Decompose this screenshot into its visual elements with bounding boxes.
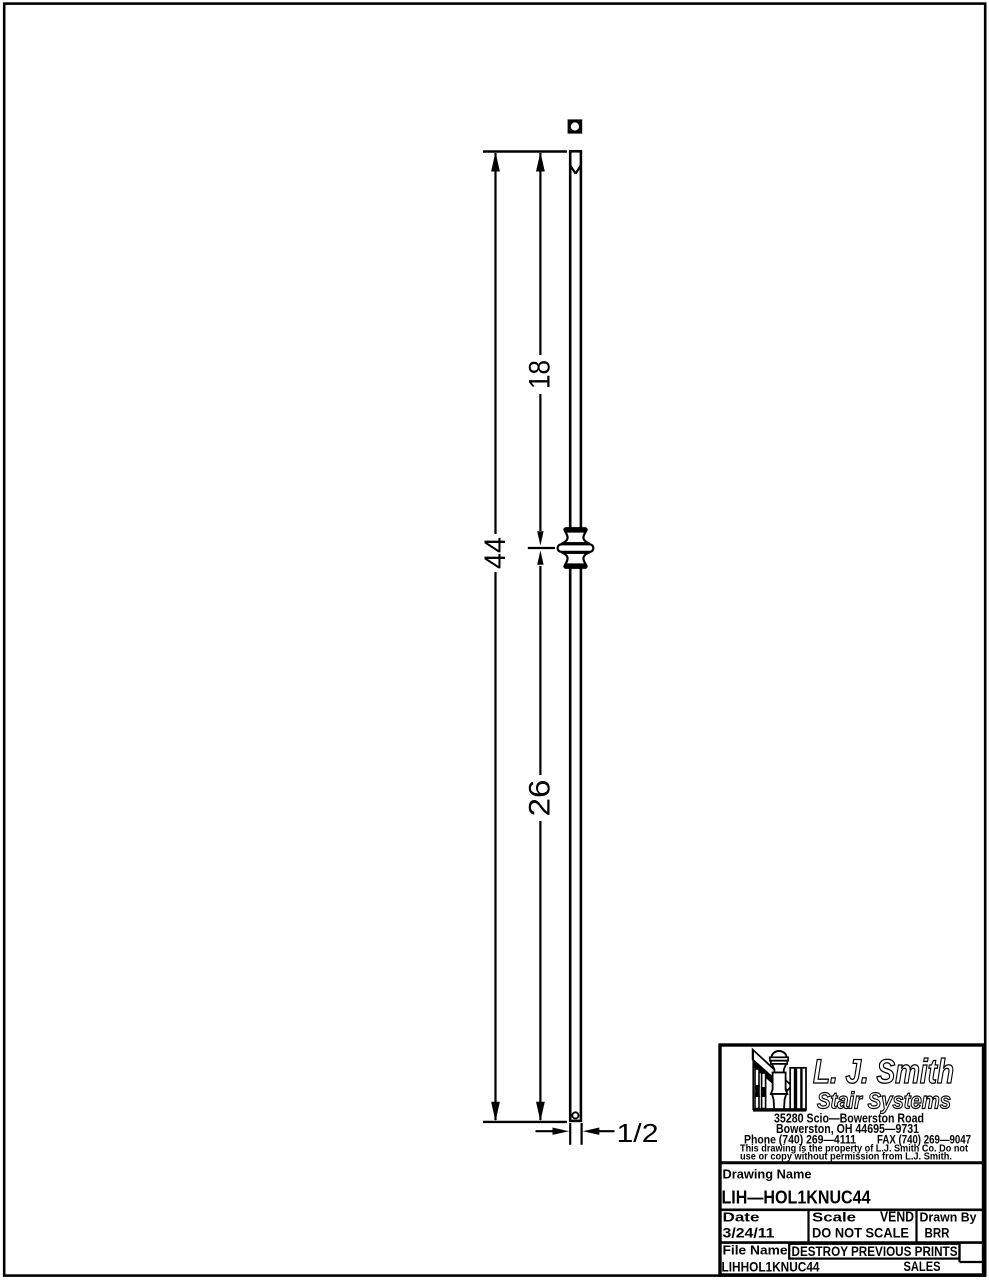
svg-text:LIH—HOL1KNUC44: LIH—HOL1KNUC44 xyxy=(722,1188,872,1208)
svg-text:DESTROY PREVIOUS PRINTS: DESTROY PREVIOUS PRINTS xyxy=(792,1244,958,1259)
svg-text:Drawing Name: Drawing Name xyxy=(723,1167,812,1182)
svg-text:DO NOT SCALE: DO NOT SCALE xyxy=(812,1226,909,1241)
svg-text:44: 44 xyxy=(479,537,512,569)
svg-text:File Name: File Name xyxy=(723,1243,788,1258)
svg-text:Date: Date xyxy=(723,1210,760,1225)
svg-text:26: 26 xyxy=(524,780,557,817)
svg-text:L. J. Smith: L. J. Smith xyxy=(813,1053,954,1091)
svg-text:VEND: VEND xyxy=(880,1210,914,1226)
svg-text:BRR: BRR xyxy=(925,1226,950,1241)
svg-text:LIHHOL1KNUC44: LIHHOL1KNUC44 xyxy=(722,1260,820,1275)
svg-text:1/2: 1/2 xyxy=(617,1118,659,1148)
svg-text:18: 18 xyxy=(524,360,557,389)
svg-text:use or copy without permission: use or copy without permission from L.J.… xyxy=(740,1151,952,1163)
svg-text:3/24/11: 3/24/11 xyxy=(723,1226,776,1241)
svg-text:SALES: SALES xyxy=(904,1259,941,1274)
svg-text:Scale: Scale xyxy=(812,1210,856,1225)
svg-text:Drawn By: Drawn By xyxy=(920,1210,978,1225)
